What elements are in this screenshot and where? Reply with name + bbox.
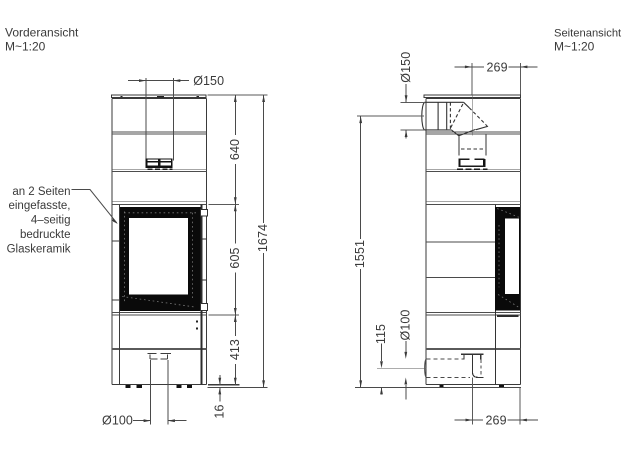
svg-text:115: 115	[374, 324, 388, 344]
svg-text:Ø100: Ø100	[102, 414, 133, 428]
svg-text:Vorderansicht: Vorderansicht	[5, 26, 79, 40]
svg-text:Ø150: Ø150	[399, 52, 413, 83]
svg-text:an 2 Seiten: an 2 Seiten	[12, 186, 70, 198]
svg-text:269: 269	[487, 60, 508, 74]
svg-text:413: 413	[228, 339, 242, 360]
svg-text:bedruckte: bedruckte	[20, 229, 71, 241]
svg-text:4–seitig: 4–seitig	[31, 215, 71, 227]
svg-text:640: 640	[228, 139, 242, 160]
svg-text:1551: 1551	[353, 240, 367, 268]
svg-text:16: 16	[212, 404, 226, 418]
svg-text:Glaskeramik: Glaskeramik	[7, 243, 71, 255]
svg-text:269: 269	[486, 413, 507, 427]
svg-text:Seitenansicht: Seitenansicht	[554, 28, 622, 40]
svg-text:1674: 1674	[256, 224, 270, 252]
svg-text:M~1:20: M~1:20	[5, 40, 46, 54]
svg-text:605: 605	[228, 247, 242, 268]
svg-text:M~1:20: M~1:20	[554, 40, 595, 54]
svg-text:Ø150: Ø150	[193, 74, 224, 88]
svg-text:eingefasste,: eingefasste,	[8, 200, 70, 212]
svg-text:Ø100: Ø100	[398, 310, 412, 341]
